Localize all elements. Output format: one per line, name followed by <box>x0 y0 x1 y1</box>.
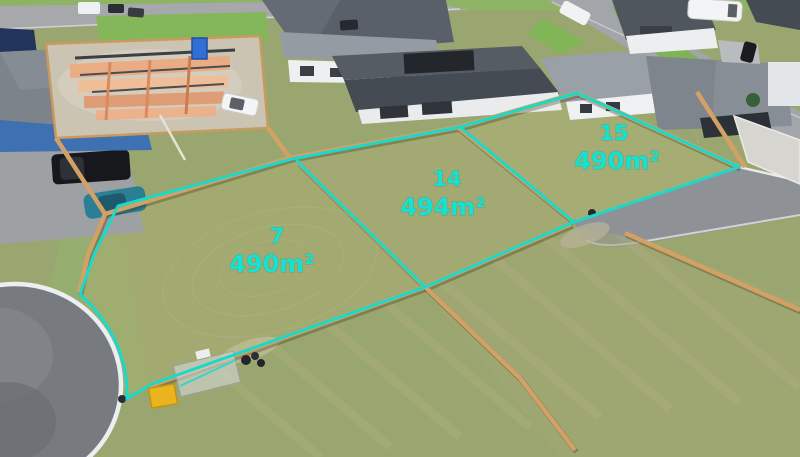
solar-panel <box>404 50 475 74</box>
tree <box>746 93 760 107</box>
portaloo <box>192 38 207 59</box>
lot-15-area: 490m² <box>574 147 660 175</box>
aerial-photo-screenshot: 7 490m² 14 494m² 15 490m² <box>0 0 800 457</box>
tyres <box>241 355 251 365</box>
parked-car <box>78 2 100 14</box>
window <box>580 104 592 113</box>
parked-car-dark <box>340 19 359 30</box>
tyres <box>257 359 265 367</box>
left-driveway <box>0 136 148 244</box>
lot-7-number: 7 <box>270 224 285 248</box>
far-right-building <box>768 62 800 106</box>
parked-car-dark <box>108 4 124 13</box>
lot-7-area: 490m² <box>229 250 315 278</box>
parked-car-dark <box>128 7 145 17</box>
garage-door <box>380 105 409 119</box>
garage-door <box>422 101 453 115</box>
aerial-photo: 7 490m² 14 494m² 15 490m² <box>0 0 800 457</box>
boundary-peg <box>118 395 126 403</box>
lot-15-number: 15 <box>599 121 628 145</box>
yellow-bin <box>148 384 177 408</box>
lot-14-number: 14 <box>432 167 461 191</box>
tyres <box>251 352 259 360</box>
window <box>300 66 314 76</box>
motorhome <box>687 0 742 22</box>
lot-14-area: 494m² <box>400 193 486 221</box>
